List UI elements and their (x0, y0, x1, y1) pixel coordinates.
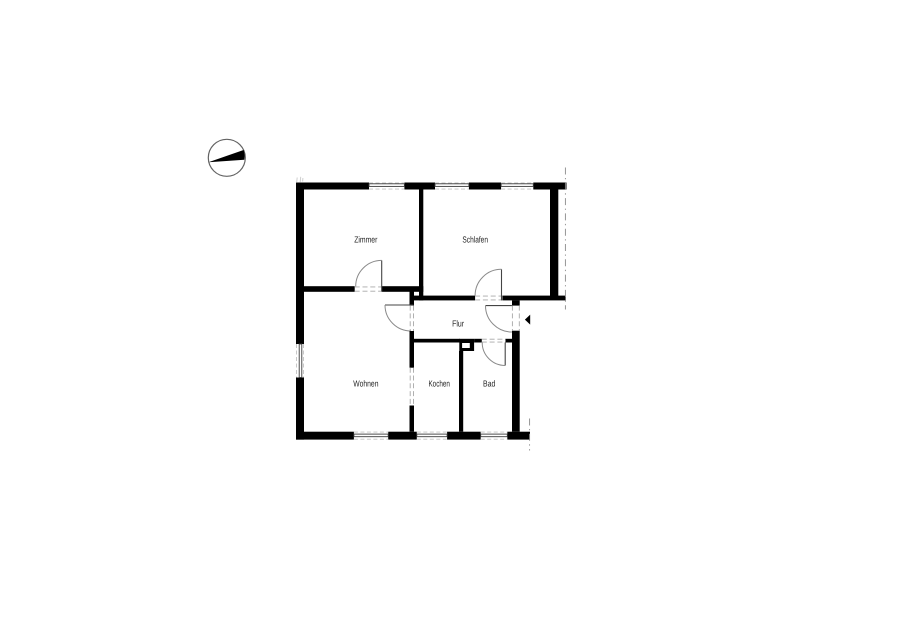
svg-text:Bad: Bad (483, 379, 495, 389)
svg-text:Flur: Flur (452, 318, 464, 328)
svg-text:Wohnen: Wohnen (353, 379, 378, 389)
svg-text:Zimmer: Zimmer (354, 235, 377, 245)
svg-text:Schlafen: Schlafen (462, 235, 488, 245)
svg-text:Kochen: Kochen (428, 379, 450, 389)
